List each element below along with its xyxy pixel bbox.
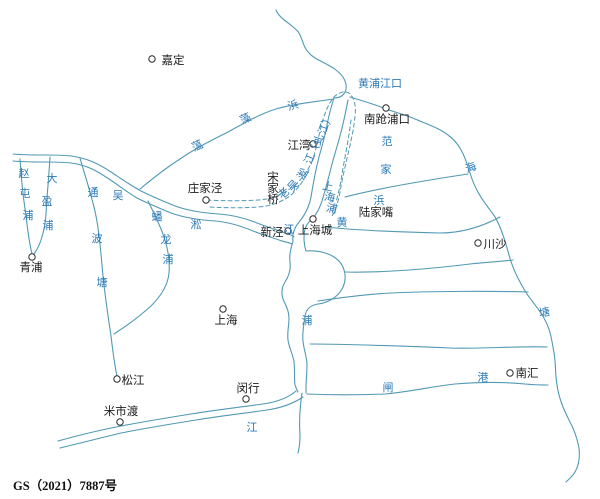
river-label: 黄浦江口 [358, 76, 402, 90]
river-label: 浜 [286, 98, 300, 113]
coast-seawall [350, 97, 579, 482]
town-qingpu: 青浦 [20, 254, 43, 274]
town-marker-mishidu [117, 419, 123, 425]
river-label: 浦 [163, 253, 174, 266]
town-nanhui: 南汇 [507, 366, 539, 380]
river-west-huangpu-north-bank [58, 391, 296, 441]
river-label: 塘 [97, 275, 108, 289]
town-chuansha: 川沙 [475, 238, 507, 251]
town-label-qingpu: 青浦 [20, 261, 43, 274]
river-label: 浜 [374, 194, 385, 207]
river-label: 龙 [161, 233, 172, 246]
map-credit: GS（2021）7887号 [13, 478, 117, 493]
river-label: 淞 [191, 218, 202, 231]
river-tongbotang [80, 158, 117, 376]
river-label: 闸 [383, 381, 394, 394]
river-label: 浦 [325, 201, 338, 216]
river-label: 大 [47, 171, 58, 185]
river-top-inlet [276, 10, 346, 98]
creek-4 [318, 291, 528, 301]
river-zhagang [307, 383, 548, 395]
town-label-nanqiangpukou: 南跄浦口 [364, 112, 410, 126]
town-label-minhang: 闵行 [237, 381, 260, 395]
town-label-lujiazui: 陆家嘴 [359, 205, 394, 219]
town-label-jiading: 嘉定 [162, 53, 185, 67]
river-south-branch [298, 393, 302, 453]
creek-5 [310, 344, 547, 348]
town-mishidu: 米市渡 [104, 404, 139, 425]
river-label: 家 [381, 162, 392, 176]
town-zhuangjiajing: 庄家泾 [188, 181, 223, 203]
river-label: 浦 [23, 209, 34, 222]
town-label-nanhui: 南汇 [516, 366, 539, 380]
town-songjiang: 松江 [114, 373, 145, 387]
town-label-mishidu: 米市渡 [104, 404, 139, 418]
town-nanqiangpukou: 南跄浦口 [364, 105, 410, 126]
town-marker-songjiang [114, 376, 120, 382]
river-label: 屯 [20, 187, 31, 200]
town-shanghaicheng: 上海城 [298, 216, 333, 237]
old-course-right-dashed [336, 120, 351, 202]
town-marker-nanhui [507, 370, 513, 376]
river-label: 蟠 [152, 210, 163, 223]
town-marker-shanghaicheng [310, 216, 316, 222]
map-canvas: 嘉定江湾南跄浦口庄家泾宋家桥陆家嘴新泾上海城川沙青浦上海松江闵行米市渡南汇黄浦江… [0, 0, 600, 499]
town-jiading: 嘉定 [149, 53, 185, 67]
creek-2 [325, 217, 500, 233]
river-label: 吴 [113, 189, 124, 202]
river-label: 波 [92, 232, 103, 245]
town-label-zhuangjiajing: 庄家泾 [188, 181, 223, 195]
town-marker-chuansha [475, 240, 481, 246]
river-label: 盈 [42, 195, 53, 208]
river-wusong-north-bank [13, 154, 294, 237]
town-label-jiangwan: 江湾 [288, 138, 311, 152]
creek-1 [345, 174, 468, 197]
river-label: 黄 [337, 215, 348, 229]
town-label-xinjing: 新泾 [261, 225, 284, 239]
river-label: 赵 [19, 166, 30, 180]
river-label: 藻 [238, 111, 253, 127]
town-marker-nanqiangpukou [383, 105, 389, 111]
town-marker-minhang [243, 396, 249, 402]
river-label: 江 [284, 223, 295, 236]
town-songjiaqiao: 宋家桥 [267, 170, 279, 206]
river-label: 海 [463, 159, 478, 176]
river-label: 江 [247, 421, 258, 434]
historical-rivers-map: 嘉定江湾南跄浦口庄家泾宋家桥陆家嘴新泾上海城川沙青浦上海松江闵行米市渡南汇黄浦江… [0, 0, 600, 499]
town-marker-qingpu [29, 254, 35, 260]
creek-3 [345, 260, 513, 272]
town-marker-shanghai [220, 306, 226, 312]
river-label: 范 [382, 134, 393, 148]
town-label-chuansha: 川沙 [484, 238, 507, 251]
river-label: 港 [478, 371, 489, 384]
town-label-shanghaicheng: 上海城 [298, 223, 333, 237]
town-lujiazui: 陆家嘴 [359, 205, 394, 219]
river-label: 浦 [302, 314, 313, 327]
town-marker-zhuangjiajing [203, 197, 209, 203]
town-label-shanghai: 上海 [215, 313, 238, 327]
town-minhang: 闵行 [237, 381, 260, 402]
river-label: 浦 [43, 219, 54, 232]
river-label: 通 [88, 186, 99, 199]
town-marker-jiading [149, 56, 155, 62]
town-shanghai: 上海 [215, 306, 238, 327]
town-label-songjiaqiao: 宋家桥 [267, 170, 279, 206]
river-west-huangpu-south-bank [60, 397, 303, 448]
town-label-songjiang: 松江 [122, 373, 145, 387]
river-label: 塘 [538, 304, 551, 320]
